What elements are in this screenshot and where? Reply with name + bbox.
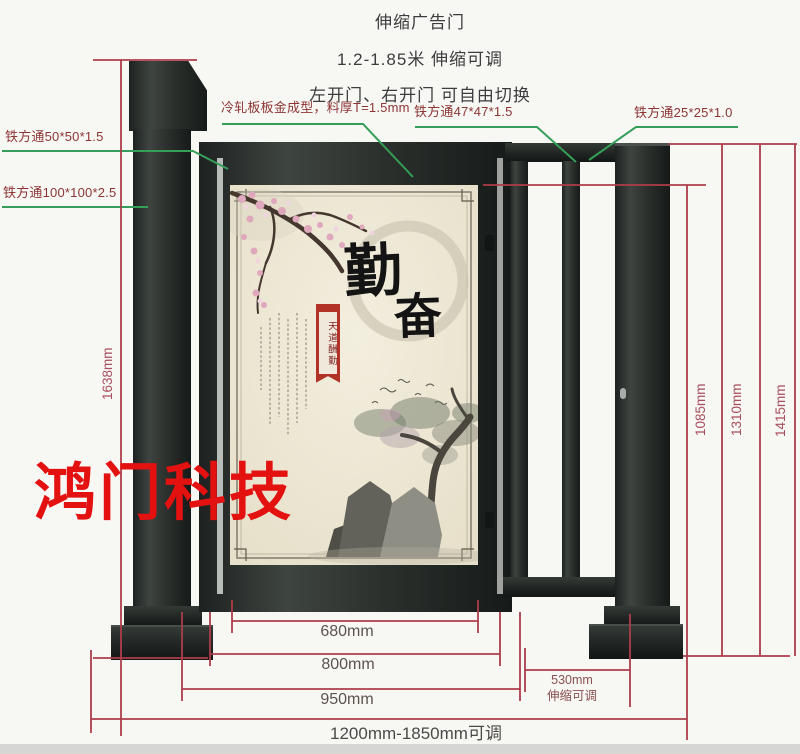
frame-highlight-right	[497, 158, 503, 594]
dim-inner-height-label: 1085mm	[693, 360, 709, 460]
dim-slide-width-label: 530mm	[522, 673, 622, 687]
bottom-edge-band	[0, 744, 800, 754]
calligraphy-fen: 奋	[393, 289, 443, 346]
dim-panel-width-label: 680mm	[297, 623, 397, 641]
dim-total-width-label: 1200mm-1850mm可调	[286, 724, 546, 744]
poster-banner-text: 天道酬勤	[320, 314, 336, 374]
telescopic-bottom-rail	[503, 577, 618, 597]
gate-diagram: 伸缩广告门 1.2-1.85米 伸缩可调 左开门、右开门 可自由切换	[0, 0, 800, 754]
title-line-2: 1.2-1.85米 伸缩可调	[280, 45, 560, 70]
dim-door-width-label: 800mm	[298, 656, 398, 674]
dim-slide-note-label: 伸缩可调	[522, 689, 622, 703]
left-post-cap	[129, 61, 207, 131]
watermark-text: 鸿门科技	[34, 458, 294, 529]
telescopic-bar-2	[562, 161, 580, 581]
door-hinge-top	[485, 235, 494, 251]
dim-frame-width-label: 950mm	[297, 691, 397, 709]
title-block: 伸缩广告门 1.2-1.85米 伸缩可调 左开门、右开门 可自由切换	[280, 8, 560, 106]
dim-post-height-label: 1638mm	[100, 324, 116, 424]
title-line-1: 伸缩广告门	[280, 8, 560, 33]
door-hinge-bottom	[485, 512, 494, 528]
dim-frame-height-label: 1415mm	[773, 361, 789, 461]
callout-tube100-label: 铁方通100*100*2.5	[3, 186, 116, 201]
telescopic-bar-1	[510, 161, 528, 581]
right-post-lock-dot	[620, 388, 626, 399]
right-post-body	[615, 143, 670, 615]
left-post-body	[133, 129, 191, 612]
dim-mid-height-label: 1310mm	[729, 360, 745, 460]
callout-tube25-label: 铁方通25*25*1.0	[634, 106, 733, 121]
right-post-foot-base	[589, 624, 683, 659]
telescopic-top-rail	[505, 143, 618, 162]
callout-tube50-label: 铁方通50*50*1.5	[5, 130, 104, 145]
left-post-foot-base	[111, 625, 213, 660]
callout-tube47-label: 铁方通47*47*1.5	[414, 105, 513, 120]
callout-sheet-label: 冷轧板板金成型，料厚T=1.5mm	[221, 101, 410, 116]
